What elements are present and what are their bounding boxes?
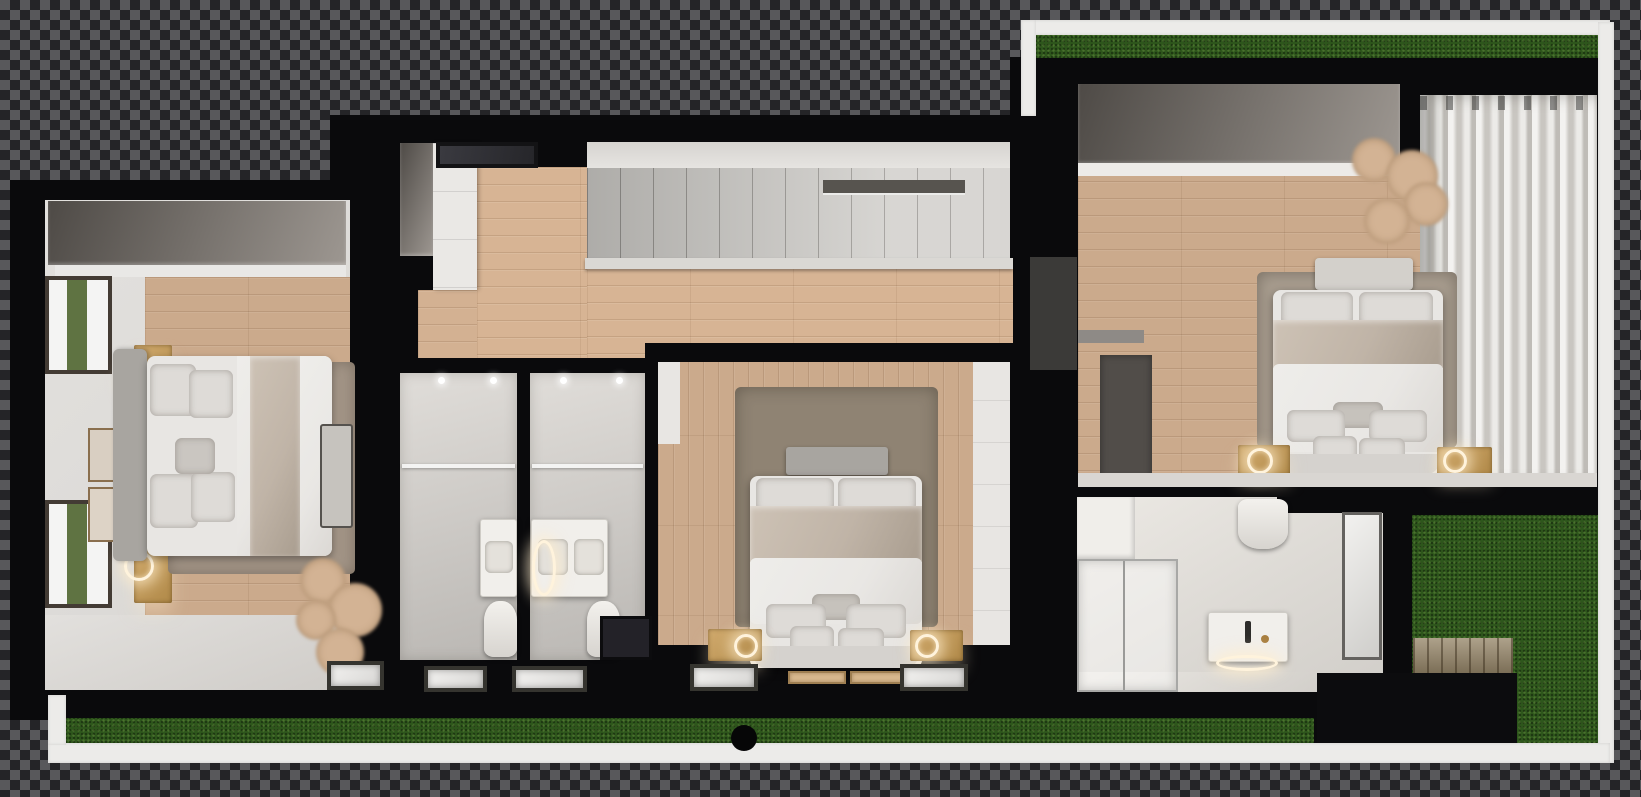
ceiling-light (438, 377, 445, 384)
floor-window (327, 661, 384, 690)
toilet (1238, 499, 1288, 549)
pampas-plant (1404, 182, 1448, 226)
faucet (1245, 621, 1251, 643)
hallway-wood-floor (477, 167, 587, 358)
shower-glass-edge (402, 464, 515, 468)
left-bedroom-wardrobe-row (48, 201, 346, 265)
floor-window (424, 666, 487, 692)
floorplan-canvas (0, 0, 1641, 797)
white-frame-top-left (1021, 20, 1036, 116)
folded-blanket (250, 356, 300, 556)
hallway-ceiling-band (587, 142, 1010, 170)
dark-patio (1317, 673, 1517, 743)
sink-basin (485, 541, 513, 573)
right-bathroom-step-wall (1277, 497, 1383, 513)
glass-shower-enclosure (1077, 559, 1178, 692)
gold-accessory (1261, 635, 1269, 643)
bed-base (1277, 454, 1439, 474)
ceiling-light (560, 377, 567, 384)
stair-railing (585, 258, 1013, 269)
hallway-wood-floor (418, 290, 477, 358)
left-bedroom-window-top (45, 276, 112, 374)
ring-lamp (1443, 449, 1467, 473)
garden-view-strip (67, 504, 87, 604)
bed-headboard (1315, 258, 1413, 290)
round-marker (731, 725, 757, 751)
double-bed (1273, 290, 1443, 475)
desk-cabinet (1100, 355, 1152, 480)
ring-lamp (734, 634, 758, 658)
gray-door-panel (1030, 257, 1077, 370)
stair-void (823, 180, 965, 195)
ring-lamp (915, 634, 939, 658)
pampas-plant (1364, 198, 1410, 244)
shower-glass-edge (532, 464, 643, 468)
mirror (1342, 512, 1382, 660)
wood-deck (1413, 638, 1513, 673)
shower-glass-divider (1123, 561, 1125, 690)
curtain-rod-hooks (1420, 96, 1597, 110)
pillow (191, 472, 235, 522)
garden-view-strip (67, 280, 87, 370)
double-bed (147, 356, 332, 556)
toilet (484, 601, 517, 657)
center-bedroom-top-wall (645, 343, 1020, 362)
closet-wall (973, 358, 1010, 645)
bed-headboard (113, 349, 147, 561)
ceiling-light (616, 377, 623, 384)
vanity-sink-unit (480, 519, 517, 597)
double-bed (750, 476, 922, 668)
vanity-ring-light (532, 540, 556, 596)
bed-base (754, 646, 918, 668)
white-frame-top (1021, 20, 1610, 35)
right-bedroom-floor-strip (1078, 473, 1597, 487)
bed-headboard (786, 447, 888, 475)
white-frame-right (1598, 22, 1614, 763)
pillow (189, 370, 233, 418)
bedroom-bench (320, 424, 353, 528)
hallway-wardrobe-panel (400, 143, 433, 256)
vanity-glow-light (1216, 655, 1278, 671)
floor-window (900, 664, 968, 691)
dark-niche (600, 616, 652, 660)
wall-cabinet (658, 358, 680, 444)
folded-blanket (750, 506, 922, 562)
right-bedroom-wardrobe-row (1078, 84, 1400, 164)
white-frame-bottom-left (48, 695, 66, 745)
floor-window (512, 666, 587, 692)
skylight-window (436, 142, 538, 168)
bottom-lawn-strip (66, 718, 1314, 744)
top-lawn-strip (1036, 33, 1598, 58)
sink-basin (574, 539, 604, 575)
door-mat (788, 671, 846, 684)
folded-blanket (1273, 320, 1443, 368)
white-frame-bottom (48, 743, 1610, 763)
floor-window (690, 664, 758, 691)
ring-lamp (1247, 448, 1273, 474)
wall-shelf (1078, 330, 1144, 343)
ceiling-light (490, 377, 497, 384)
bathroom-cabinet (1077, 497, 1135, 559)
throw-pillow (175, 438, 215, 474)
